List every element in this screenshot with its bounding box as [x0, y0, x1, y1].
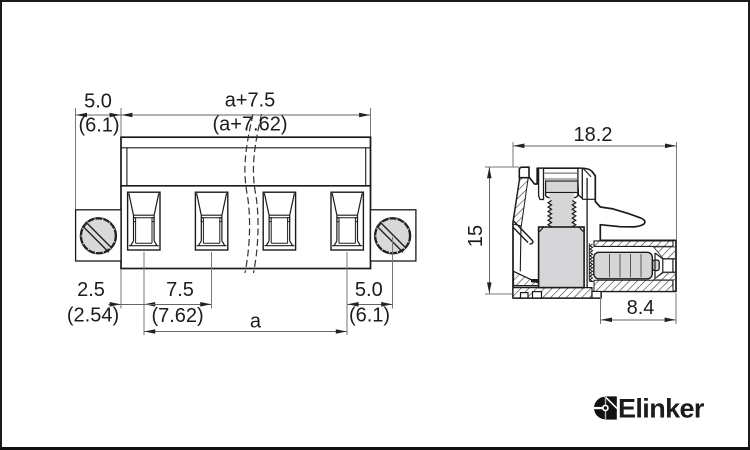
svg-text:(6.1): (6.1): [78, 115, 119, 137]
svg-text:5.0: 5.0: [355, 279, 383, 301]
svg-text:(7.62): (7.62): [151, 305, 203, 327]
svg-text:8.4: 8.4: [627, 297, 655, 319]
svg-text:(a+7.62): (a+7.62): [212, 114, 287, 136]
svg-text:18.2: 18.2: [574, 124, 613, 146]
svg-text:7.5: 7.5: [166, 279, 194, 301]
svg-text:2.5: 2.5: [77, 279, 105, 301]
svg-text:(6.1): (6.1): [349, 305, 390, 327]
svg-text:Elinker: Elinker: [618, 394, 705, 424]
svg-text:5.0: 5.0: [84, 91, 112, 113]
svg-text:a+7.5: a+7.5: [225, 90, 276, 112]
svg-text:(2.54): (2.54): [67, 305, 119, 327]
svg-text:15: 15: [465, 225, 487, 247]
svg-text:a: a: [250, 311, 262, 333]
